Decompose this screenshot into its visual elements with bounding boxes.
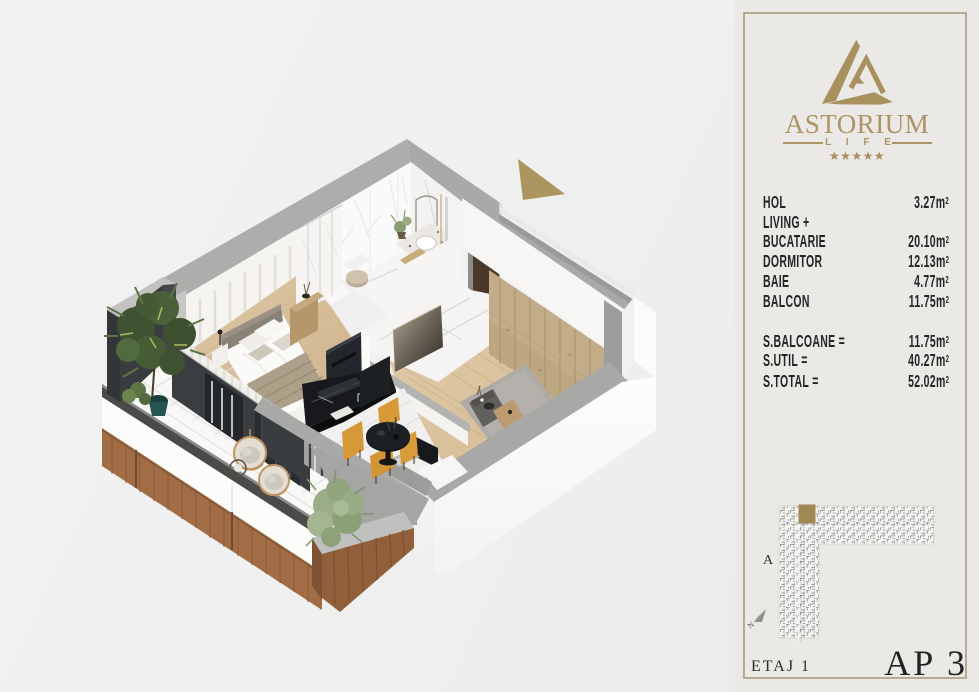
svg-text:A: A [763,553,774,568]
